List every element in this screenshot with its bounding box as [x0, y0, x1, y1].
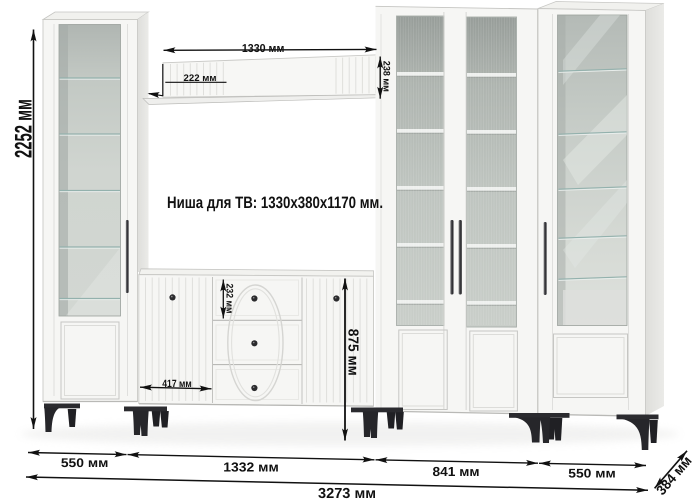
svg-text:Ниша для ТВ: 1330x380x1170 мм.: Ниша для ТВ: 1330x380x1170 мм.	[167, 194, 383, 212]
svg-text:2252 мм: 2252 мм	[11, 99, 38, 158]
svg-text:1330 мм: 1330 мм	[242, 43, 285, 55]
svg-text:1332 мм: 1332 мм	[223, 459, 279, 474]
svg-text:3273 мм: 3273 мм	[318, 486, 376, 502]
svg-text:841 мм: 841 мм	[433, 464, 480, 479]
svg-text:232 мм: 232 мм	[223, 284, 234, 314]
svg-text:238 мм: 238 мм	[381, 61, 392, 92]
svg-text:550 мм: 550 мм	[568, 467, 616, 481]
svg-text:550 мм: 550 мм	[61, 456, 109, 470]
svg-text:875 мм: 875 мм	[345, 329, 361, 376]
